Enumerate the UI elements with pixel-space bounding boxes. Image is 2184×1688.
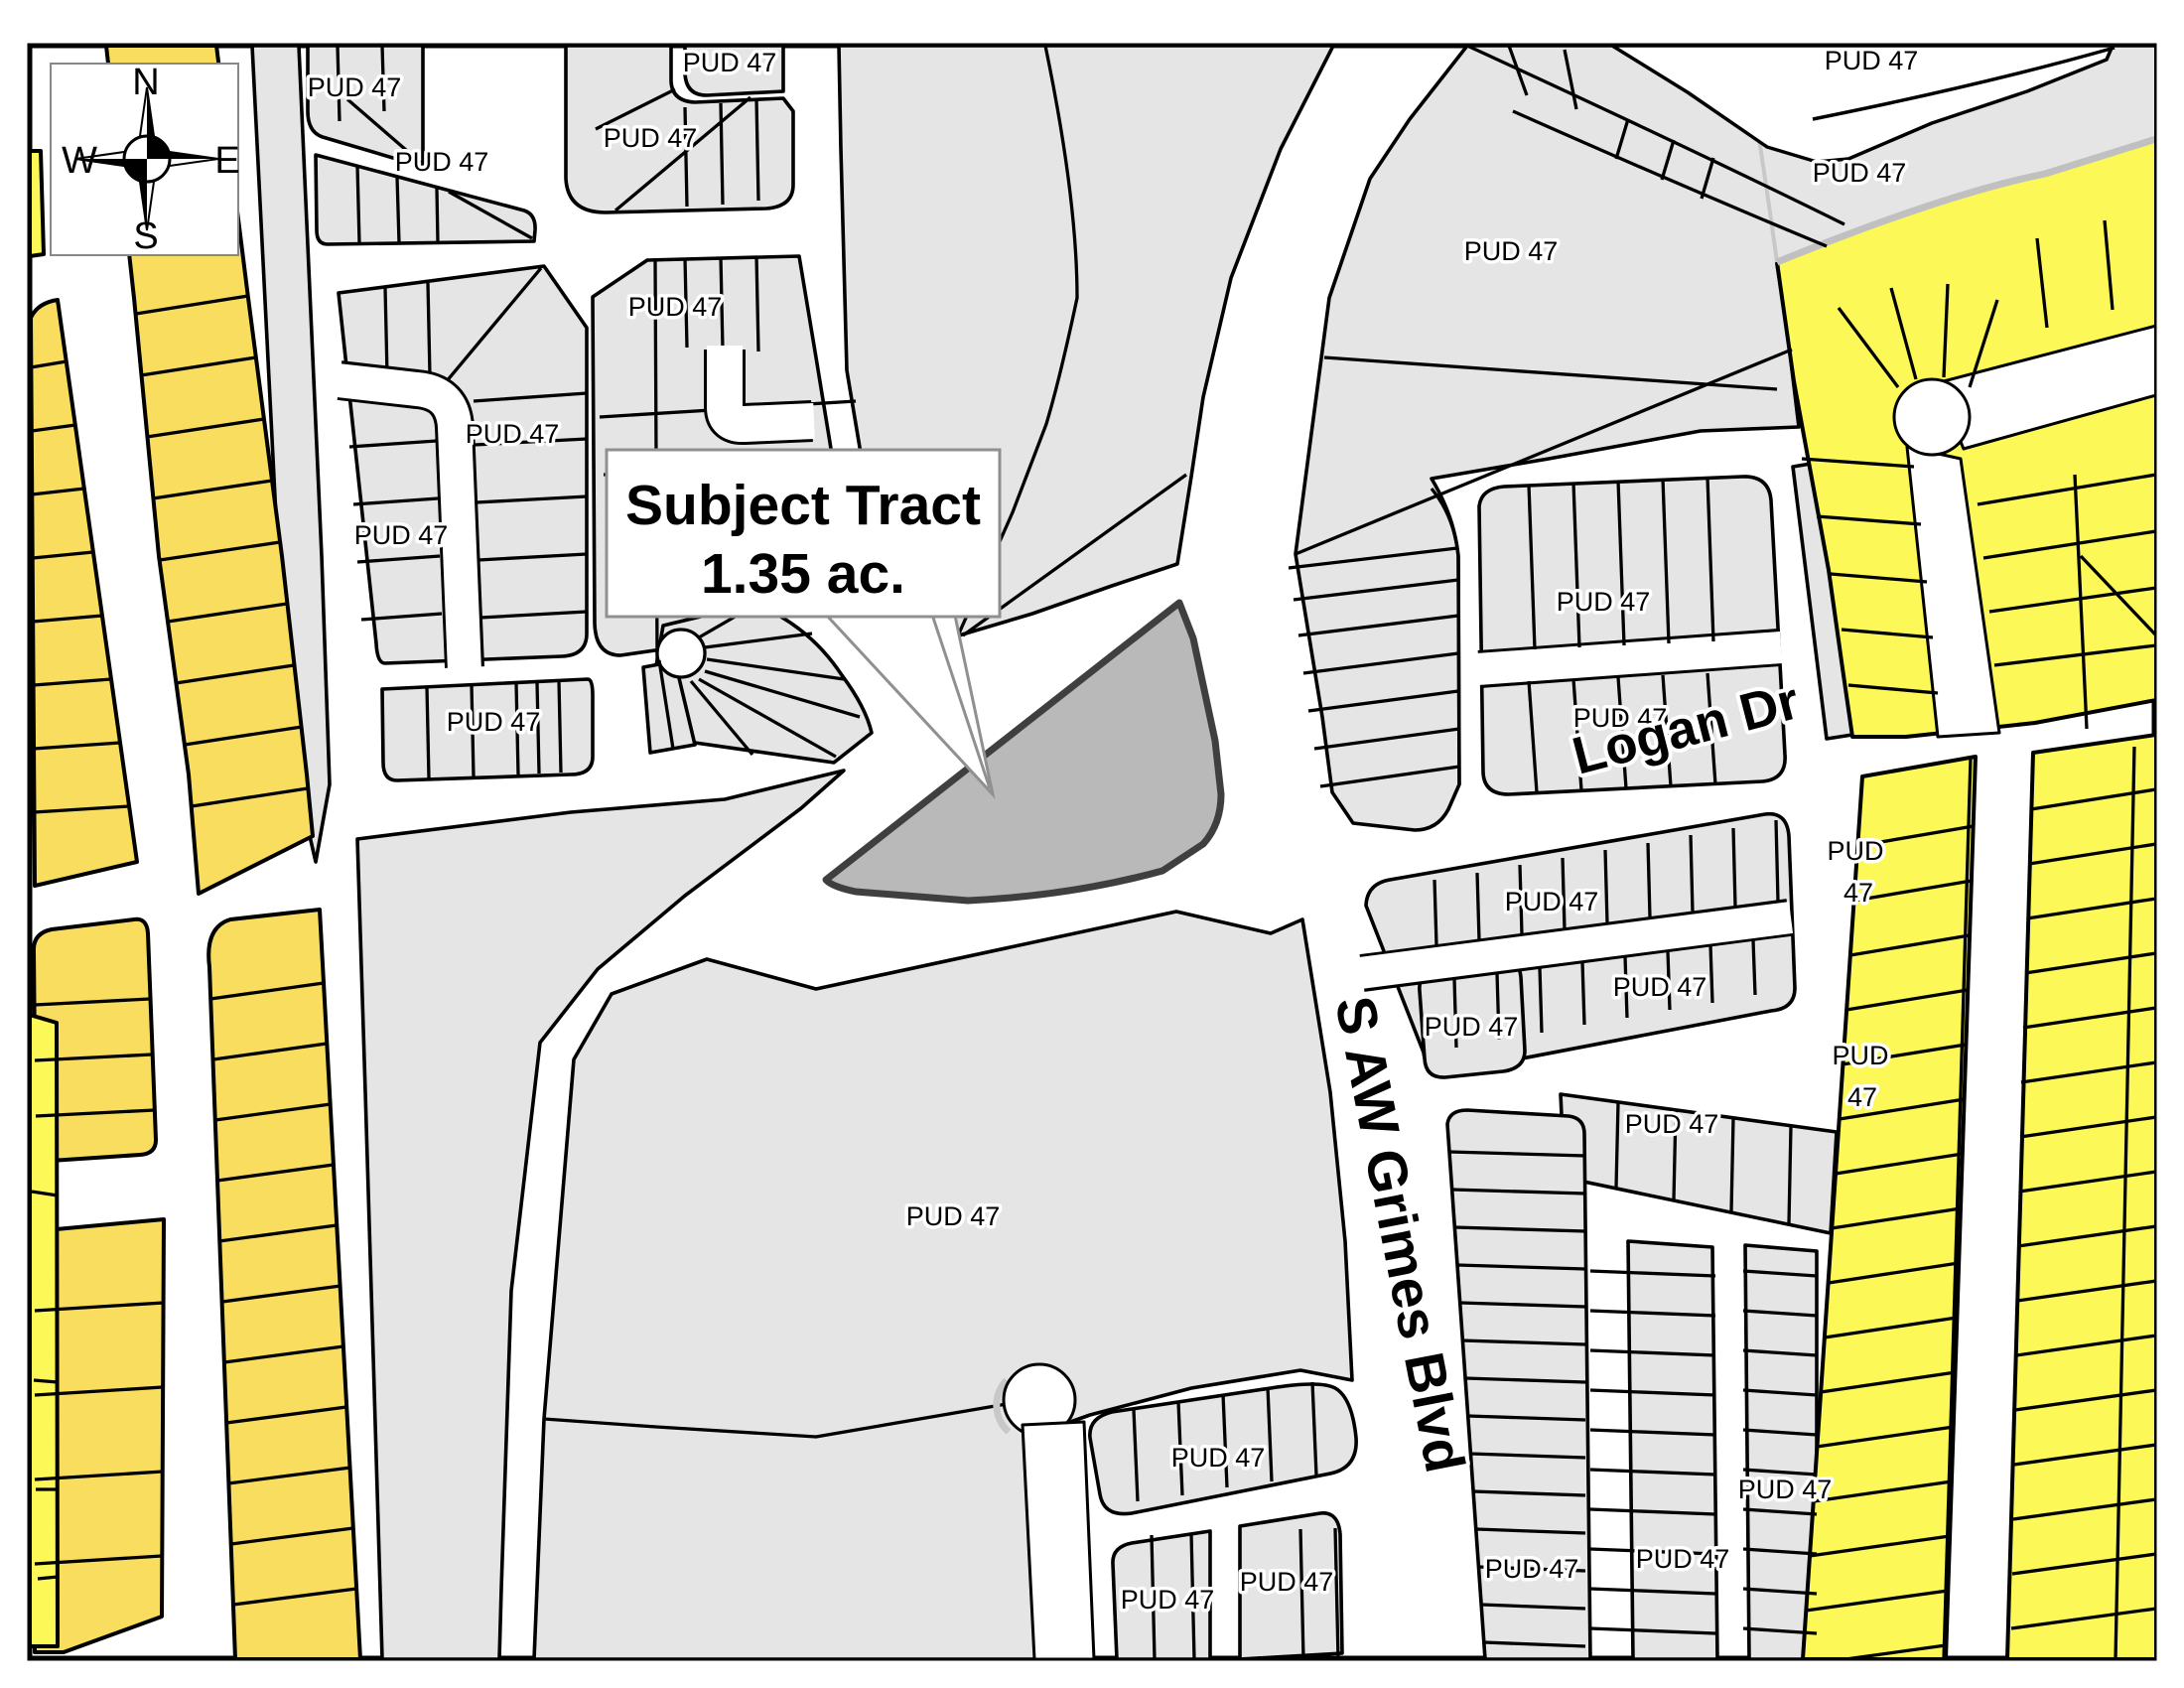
svg-text:Subject Tract: Subject Tract xyxy=(625,474,981,537)
svg-text:PUD: PUD xyxy=(1827,836,1883,866)
svg-text:N: N xyxy=(132,62,159,103)
svg-text:PUD 47: PUD 47 xyxy=(1738,1475,1833,1504)
svg-text:PUD 47: PUD 47 xyxy=(1625,1109,1719,1139)
svg-text:PUD 47: PUD 47 xyxy=(604,123,698,153)
svg-text:1.35 ac.: 1.35 ac. xyxy=(701,542,905,606)
svg-text:PUD 47: PUD 47 xyxy=(1505,887,1599,916)
svg-text:PUD 47: PUD 47 xyxy=(1636,1544,1730,1574)
svg-text:PUD: PUD xyxy=(1832,1041,1888,1070)
svg-text:PUD 47: PUD 47 xyxy=(1464,236,1559,266)
svg-text:47: 47 xyxy=(1843,878,1873,908)
svg-text:47: 47 xyxy=(1847,1082,1877,1112)
svg-text:PUD 47: PUD 47 xyxy=(1485,1554,1579,1584)
svg-text:E: E xyxy=(214,140,239,182)
svg-text:S: S xyxy=(133,215,158,257)
svg-text:PUD 47: PUD 47 xyxy=(1240,1567,1334,1597)
svg-text:PUD 47: PUD 47 xyxy=(1825,46,1919,75)
svg-text:PUD 47: PUD 47 xyxy=(906,1201,1001,1231)
svg-text:PUD 47: PUD 47 xyxy=(1813,158,1907,188)
svg-text:PUD 47: PUD 47 xyxy=(308,72,402,102)
svg-text:PUD 47: PUD 47 xyxy=(628,292,723,322)
svg-text:PUD 47: PUD 47 xyxy=(1425,1012,1519,1042)
svg-text:PUD 47: PUD 47 xyxy=(1557,587,1651,617)
svg-text:PUD 47: PUD 47 xyxy=(447,707,541,737)
svg-text:PUD 47: PUD 47 xyxy=(1121,1585,1215,1615)
svg-text:PUD 47: PUD 47 xyxy=(683,48,777,77)
svg-text:PUD 47: PUD 47 xyxy=(354,520,449,550)
svg-text:W: W xyxy=(62,140,97,182)
svg-text:PUD 47: PUD 47 xyxy=(1613,972,1707,1002)
svg-text:PUD 47: PUD 47 xyxy=(466,419,560,449)
svg-text:PUD 47: PUD 47 xyxy=(1171,1443,1266,1473)
svg-text:PUD 47: PUD 47 xyxy=(395,147,489,177)
